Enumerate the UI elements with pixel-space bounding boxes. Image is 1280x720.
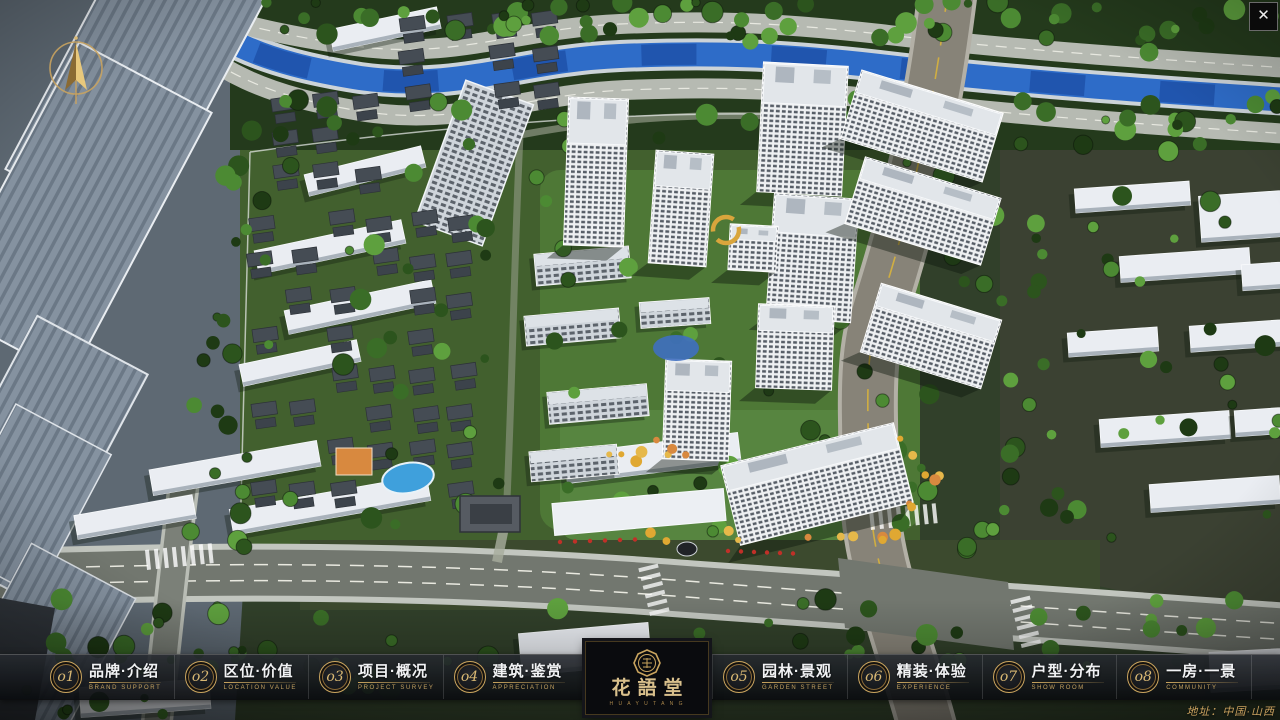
nav-sublabel: EXPERIENCE xyxy=(897,685,969,691)
nav-sublabel: GARDEN STREET xyxy=(762,685,834,691)
seal-icon xyxy=(633,649,661,677)
gold-divider xyxy=(493,682,565,683)
nav-text: 一房·一景 COMMUNITY xyxy=(1166,664,1238,691)
nav-item-views[interactable]: o8 一房·一景 COMMUNITY xyxy=(1116,655,1252,699)
nav-sublabel: PROJECT SURVEY xyxy=(358,685,435,691)
nav-label: 精装·体验 xyxy=(897,664,969,679)
nav-sublabel: LOCATION VALUE xyxy=(224,685,298,691)
nav-label: 品牌·介绍 xyxy=(89,664,161,679)
nav-number-badge: o5 xyxy=(723,661,755,693)
nav-text: 精装·体验 EXPERIENCE xyxy=(897,664,969,691)
nav-number-badge: o6 xyxy=(858,661,890,693)
nav-item-brand[interactable]: o1 品牌·介绍 BRAND SUPPORT xyxy=(40,655,174,699)
nav-text: 园林·景观 GARDEN STREET xyxy=(762,664,834,691)
presentation-window: ✕ o1 品牌·介绍 BRAND SUPPORT o2 区位·价值 LOCATI… xyxy=(0,0,1280,720)
gold-divider xyxy=(89,682,161,683)
nav-number-badge: o1 xyxy=(50,661,82,693)
nav-label: 建筑·鉴赏 xyxy=(493,664,565,679)
project-logo[interactable]: 花語堂 H U A Y U T A N G xyxy=(585,641,709,715)
gold-divider xyxy=(1032,682,1104,683)
nav-text: 户型·分布 SHOW ROOM xyxy=(1032,664,1104,691)
nav-sublabel: SHOW ROOM xyxy=(1032,685,1104,691)
nav-label: 一房·一景 xyxy=(1166,664,1238,679)
nav-number-badge: o2 xyxy=(185,661,217,693)
compass-needle-dark xyxy=(65,42,76,90)
nav-number-badge: o3 xyxy=(319,661,351,693)
nav-label: 户型·分布 xyxy=(1032,664,1104,679)
nav-label: 园林·景观 xyxy=(762,664,834,679)
nav-item-garden[interactable]: o5 园林·景观 GARDEN STREET xyxy=(712,655,847,699)
nav-sublabel: COMMUNITY xyxy=(1166,685,1238,691)
close-icon: ✕ xyxy=(1257,7,1270,24)
nav-item-location[interactable]: o2 区位·价值 LOCATION VALUE xyxy=(174,655,309,699)
compass-needle-light xyxy=(76,42,87,90)
gold-divider xyxy=(897,682,969,683)
nav-number-badge: o8 xyxy=(1127,661,1159,693)
nav-item-interior[interactable]: o6 精装·体验 EXPERIENCE xyxy=(847,655,982,699)
nav-sublabel: BRAND SUPPORT xyxy=(89,685,161,691)
masterplan-3d-view[interactable] xyxy=(0,0,1280,720)
nav-text: 建筑·鉴赏 APPRECIATION xyxy=(493,664,565,691)
nav-text: 区位·价值 LOCATION VALUE xyxy=(224,664,298,691)
address-text: 地址：中国·山西 xyxy=(1186,703,1275,719)
nav-label: 区位·价值 xyxy=(224,664,298,679)
gold-divider xyxy=(762,682,834,683)
close-button[interactable]: ✕ xyxy=(1249,2,1278,31)
nav-number-badge: o7 xyxy=(993,661,1025,693)
nav-label: 项目·概况 xyxy=(358,664,435,679)
nav-text: 品牌·介绍 BRAND SUPPORT xyxy=(89,664,161,691)
compass-north-dot xyxy=(74,36,78,40)
nav-number-badge: o4 xyxy=(454,661,486,693)
nav-sublabel: APPRECIATION xyxy=(493,685,565,691)
nav-text: 项目·概况 PROJECT SURVEY xyxy=(358,664,435,691)
gold-divider xyxy=(224,682,296,683)
navbar-left-segment: o1 品牌·介绍 BRAND SUPPORT o2 区位·价值 LOCATION… xyxy=(40,655,577,699)
nav-item-architecture[interactable]: o4 建筑·鉴赏 APPRECIATION xyxy=(443,655,578,699)
gold-divider xyxy=(1166,682,1238,683)
project-name: 花語堂 xyxy=(604,679,689,698)
nav-item-floorplans[interactable]: o7 户型·分布 SHOW ROOM xyxy=(982,655,1117,699)
compass[interactable] xyxy=(44,30,108,113)
gold-divider xyxy=(358,682,430,683)
project-name-caption: H U A Y U T A N G xyxy=(609,701,684,707)
navbar-right-segment: o5 园林·景观 GARDEN STREET o6 精装·体验 EXPERIEN… xyxy=(712,655,1252,699)
nav-item-project[interactable]: o3 项目·概况 PROJECT SURVEY xyxy=(308,655,443,699)
